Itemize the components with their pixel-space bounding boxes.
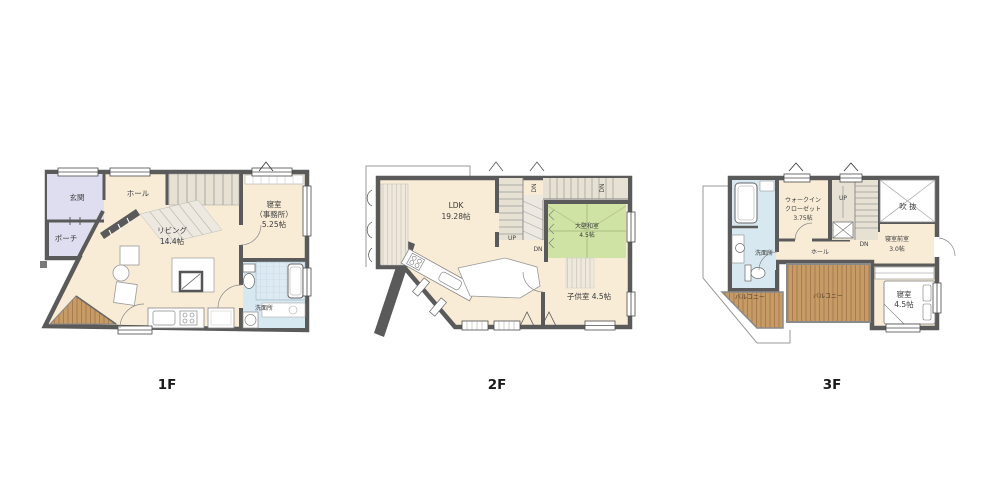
tatami-step-2f bbox=[566, 258, 594, 288]
label-anteroom-size: 3.0帖 bbox=[889, 245, 905, 253]
kitchen-counter-1f bbox=[148, 308, 234, 328]
label-void: 吹 抜 bbox=[899, 201, 917, 211]
label-hall-1f: ホール bbox=[127, 189, 150, 198]
label-ldk-name: LDK bbox=[449, 201, 465, 210]
vanity-sink-3f bbox=[732, 235, 745, 263]
floor-label-2f: 2F bbox=[488, 377, 507, 393]
void-atrium bbox=[880, 180, 935, 222]
label-ldk-size: 19.28帖 bbox=[442, 211, 471, 221]
floor-plan-drawing: 玄関 ポーチ ホール リビング 14.4帖 寝室 （事務所） 5.25帖 洗面所… bbox=[0, 0, 1000, 500]
label-anteroom-name: 寝室前室 bbox=[885, 235, 909, 243]
label-dn-upper-right-2f: DN bbox=[599, 183, 606, 192]
label-entrance: 玄関 bbox=[70, 192, 85, 202]
floor-plan-2f: LDK 19.28帖 大壁和室 4.5帖 子供室 4.5帖 UP DN DN D… bbox=[366, 162, 635, 393]
label-bedroom-3f-name: 寝室 bbox=[897, 289, 912, 299]
toilet-icon-1f bbox=[243, 264, 255, 289]
label-porch: ポーチ bbox=[55, 234, 78, 243]
label-balcony-left: バルコニー bbox=[735, 294, 765, 301]
floor-plan-1f: 玄関 ポーチ ホール リビング 14.4帖 寝室 （事務所） 5.25帖 洗面所… bbox=[40, 162, 311, 393]
floor-plan-sheet: 玄関 ポーチ ホール リビング 14.4帖 寝室 （事務所） 5.25帖 洗面所… bbox=[0, 0, 1000, 500]
label-washitsu-name: 大壁和室 bbox=[575, 222, 599, 230]
label-dn-3f: DN bbox=[859, 241, 868, 248]
label-wic-size: 3.75帖 bbox=[793, 214, 812, 222]
label-balcony-main: バルコニー bbox=[813, 293, 843, 300]
stairs-3f bbox=[832, 180, 878, 240]
label-washroom-1f: 洗面所 bbox=[255, 304, 273, 312]
label-washitsu-size: 4.5帖 bbox=[579, 231, 595, 239]
swing-marks-3f bbox=[789, 163, 858, 171]
label-up-2f: UP bbox=[508, 235, 516, 242]
label-hall-3f: ホール bbox=[811, 249, 829, 256]
label-washroom-3f: 洗面所 bbox=[755, 249, 773, 257]
window-scallops-2f bbox=[367, 190, 372, 262]
bathtub-icon bbox=[288, 264, 303, 298]
washing-machine-icon bbox=[243, 312, 258, 328]
label-living-size: 14.4帖 bbox=[160, 236, 185, 246]
label-bedroom-1f-sub: （事務所） bbox=[255, 209, 293, 219]
stairs-1f bbox=[169, 174, 239, 205]
label-bedroom-1f-name: 寝室 bbox=[267, 199, 282, 209]
floor-label-3f: 3F bbox=[823, 377, 842, 393]
label-kids-room: 子供室 4.5帖 bbox=[567, 291, 612, 301]
label-dn-2f: DN bbox=[533, 246, 542, 253]
label-wic-1: ウォークイン bbox=[785, 196, 821, 204]
porch-step bbox=[40, 261, 47, 268]
label-bedroom-3f-size: 4.5帖 bbox=[894, 299, 914, 309]
room-washitsu bbox=[548, 204, 626, 258]
floor-label-1f: 1F bbox=[158, 377, 177, 393]
bedroom-closet-3f bbox=[875, 267, 934, 279]
bay-step-2f bbox=[381, 184, 408, 265]
label-up-3f: UP bbox=[839, 195, 847, 202]
label-bedroom-1f-size: 5.25帖 bbox=[262, 219, 287, 229]
label-dn-upper-left-2f: DN bbox=[531, 183, 538, 192]
label-living-name: リビング bbox=[157, 225, 187, 235]
label-wic-2: クローゼット bbox=[785, 205, 821, 213]
floor-plan-3f: ウォークイン クローゼット 3.75帖 UP DN 吹 抜 寝室前室 3.0帖 … bbox=[703, 163, 955, 393]
